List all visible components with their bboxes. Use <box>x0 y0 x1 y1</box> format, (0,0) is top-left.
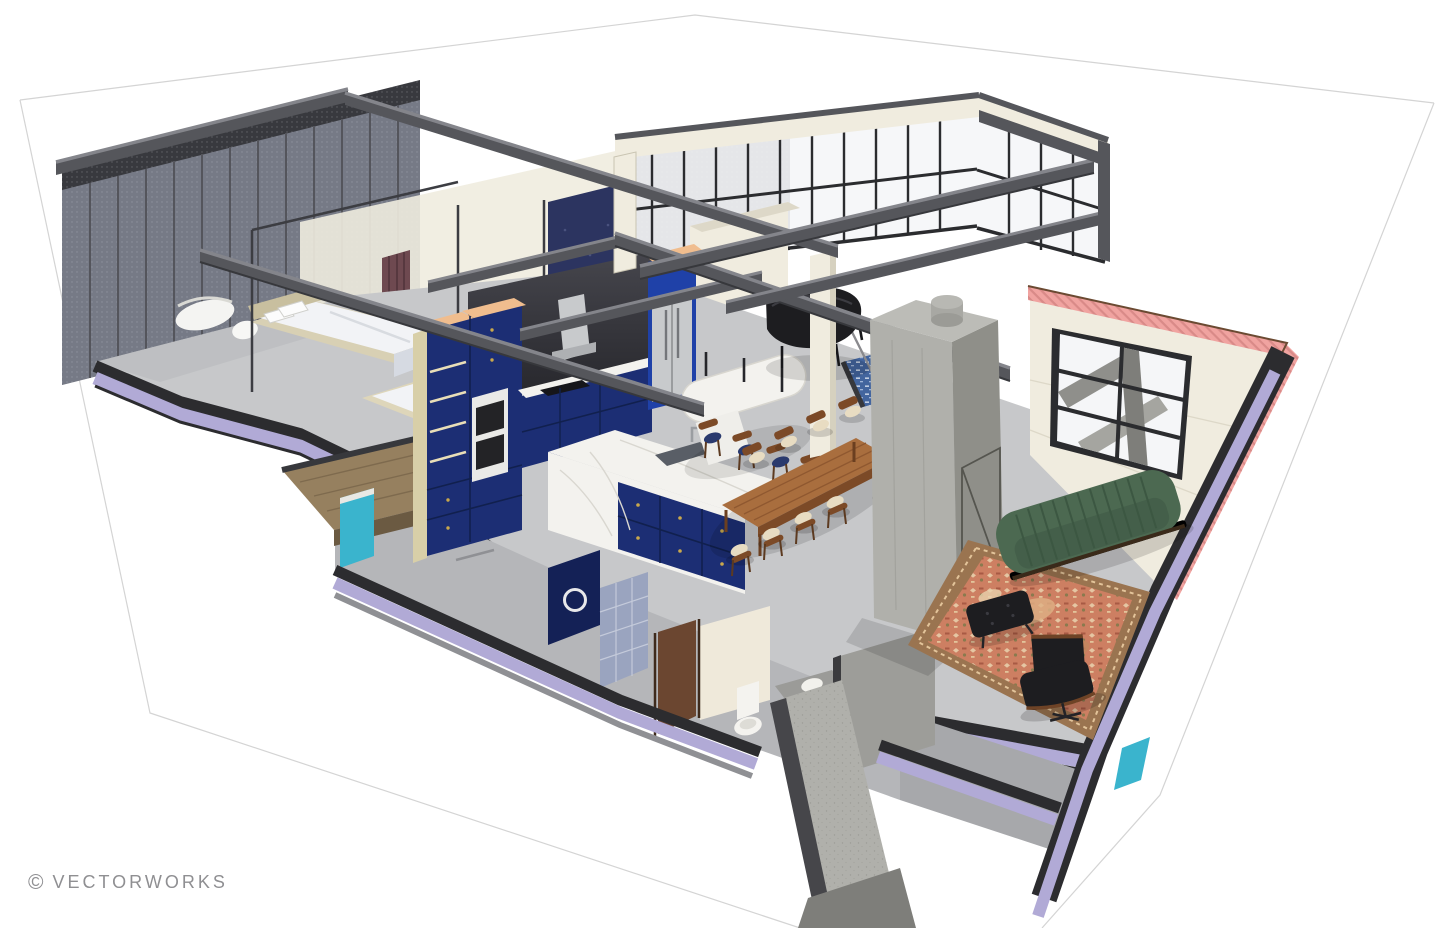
chimney-flue-cylinder <box>931 295 963 327</box>
column-hall <box>614 152 636 273</box>
wall-oven <box>472 388 508 482</box>
loft-cutaway-illustration <box>0 0 1440 928</box>
wireframe-top-edges <box>20 15 1434 103</box>
watermark-text: VECTORWORKS <box>52 872 227 893</box>
teal-accent-panel <box>1114 737 1150 790</box>
render-canvas: © VECTORWORKS <box>0 0 1440 928</box>
shower-tile-wall <box>600 572 648 688</box>
bathroom-wall <box>700 606 770 720</box>
vectorworks-watermark: © VECTORWORKS <box>28 872 228 893</box>
tall-cabinet-side-panel <box>413 329 427 563</box>
copyright-icon: © <box>28 872 43 893</box>
